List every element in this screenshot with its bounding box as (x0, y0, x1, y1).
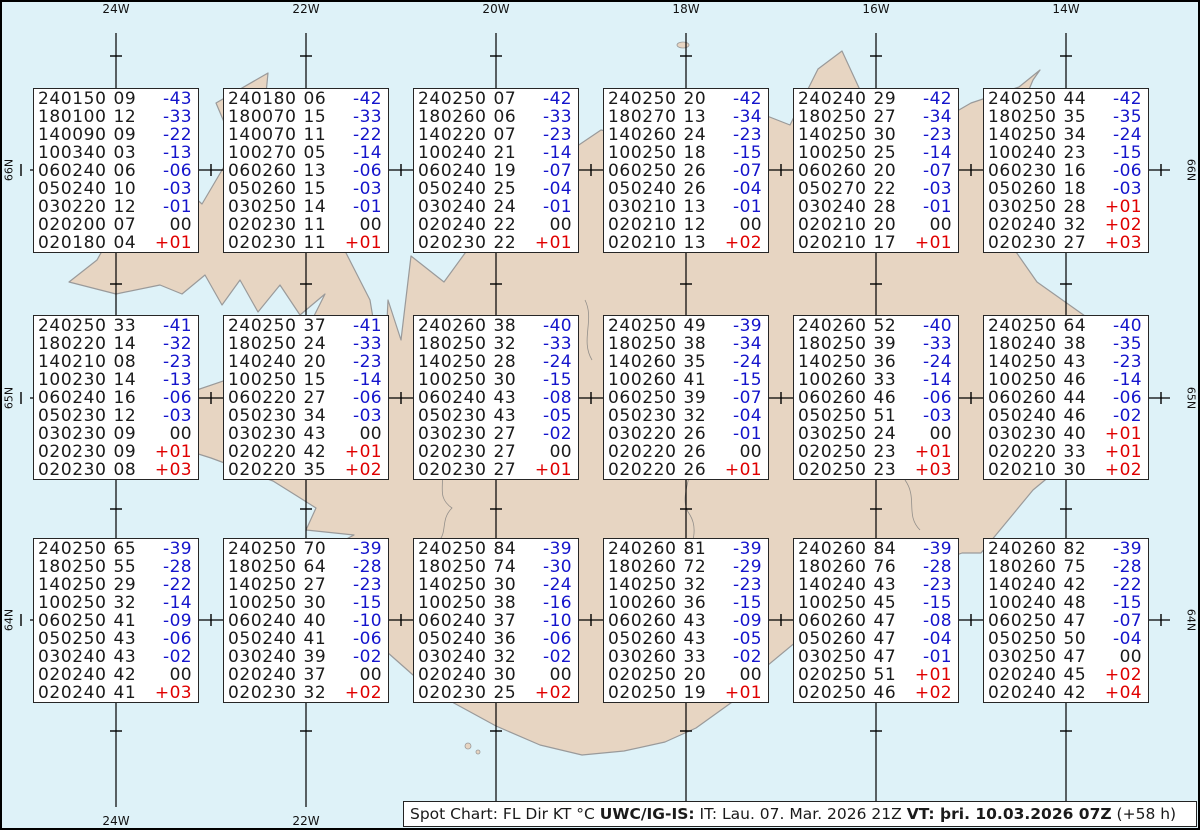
spot-line: 18024038-35 (984, 335, 1148, 353)
spot-line: 05026047-04 (794, 630, 958, 648)
fl-dir-value: 060230 (988, 162, 1057, 180)
spot-box-r3c3: 24025084-3918025074-3014025030-241002503… (413, 538, 579, 703)
fl-dir-value: 020230 (38, 443, 107, 461)
spot-line: 06026046-06 (794, 389, 958, 407)
temperature-value: -06 (163, 389, 192, 407)
fl-dir-value: 140260 (608, 126, 677, 144)
temperature-value: +01 (155, 234, 192, 252)
spot-line: 06022027-06 (224, 389, 388, 407)
fl-dir-value: 180250 (798, 108, 867, 126)
wind-speed-value: 43 (684, 630, 707, 648)
spot-line: 18025027-34 (794, 108, 958, 126)
spot-line: 05024010-03 (34, 180, 198, 198)
fl-dir-value: 180250 (798, 335, 867, 353)
spot-line: 18007015-33 (224, 108, 388, 126)
wind-speed-value: 33 (684, 648, 707, 666)
fl-dir-value: 240250 (38, 540, 107, 558)
fl-dir-value: 020210 (608, 216, 677, 234)
wind-speed-value: 21 (494, 144, 517, 162)
temperature-value: 00 (360, 216, 382, 234)
spot-box-r2c5: 24026052-4018025039-3314025036-241002603… (793, 315, 959, 480)
spot-line: 06026044-06 (984, 389, 1148, 407)
spot-line: 02022026+01 (604, 461, 768, 479)
fl-dir-value: 020230 (38, 461, 107, 479)
spot-line: 10025032-14 (34, 594, 198, 612)
temperature-value: -14 (543, 144, 572, 162)
wind-speed-value: 43 (114, 630, 137, 648)
wind-speed-value: 36 (494, 630, 517, 648)
wind-speed-value: 35 (684, 353, 707, 371)
wind-speed-value: 14 (114, 371, 137, 389)
fl-dir-value: 240250 (608, 317, 677, 335)
temperature-value: -01 (733, 198, 762, 216)
spot-box-r3c4: 24026081-3918026072-2914025032-231002603… (603, 538, 769, 703)
fl-dir-value: 020210 (798, 234, 867, 252)
wind-speed-value: 30 (304, 594, 327, 612)
spot-line: 14024020-23 (224, 353, 388, 371)
wind-speed-value: 13 (684, 234, 707, 252)
spot-box-r2c1: 24025033-4118022014-3214021008-231002301… (33, 315, 199, 480)
fl-dir-value: 100250 (988, 371, 1057, 389)
wind-speed-value: 30 (1064, 461, 1087, 479)
spot-line: 05025050-04 (984, 630, 1148, 648)
spot-line: 10025015-14 (224, 371, 388, 389)
temperature-value: -06 (353, 389, 382, 407)
spot-box-r3c1: 24025065-3918025055-2814025029-221002503… (33, 538, 199, 703)
temperature-value: -23 (923, 126, 952, 144)
temperature-value: -07 (923, 162, 952, 180)
temperature-value: 00 (930, 216, 952, 234)
wind-speed-value: 27 (494, 443, 517, 461)
temperature-value: -06 (353, 630, 382, 648)
wind-speed-value: 26 (684, 162, 707, 180)
wind-speed-value: 06 (494, 108, 517, 126)
spot-line: 06026013-06 (224, 162, 388, 180)
wind-speed-value: 07 (114, 216, 137, 234)
wind-speed-value: 11 (304, 126, 327, 144)
spot-line: 10026033-14 (794, 371, 958, 389)
temperature-value: 00 (740, 443, 762, 461)
wind-speed-value: 27 (1064, 234, 1087, 252)
spot-line: 24025049-39 (604, 317, 768, 335)
temperature-value: 00 (740, 666, 762, 684)
temperature-value: +02 (1105, 461, 1142, 479)
temperature-value: 00 (170, 425, 192, 443)
fl-dir-value: 100250 (228, 594, 297, 612)
temperature-value: -05 (733, 630, 762, 648)
wind-speed-value: 38 (494, 317, 517, 335)
spot-line: 18025024-33 (224, 335, 388, 353)
wind-speed-value: 28 (874, 198, 897, 216)
spot-line: 10025030-15 (224, 594, 388, 612)
wind-speed-value: 75 (1064, 558, 1087, 576)
fl-dir-value: 060240 (38, 389, 107, 407)
wind-speed-value: 65 (114, 540, 137, 558)
temperature-value: -14 (353, 371, 382, 389)
spot-line: 05023032-04 (604, 407, 768, 425)
wind-speed-value: 07 (494, 90, 517, 108)
spot-box-r1c5: 24024029-4218025027-3414025030-231002502… (793, 88, 959, 253)
spot-line: 02022042+01 (224, 443, 388, 461)
wind-speed-value: 47 (874, 648, 897, 666)
spot-box-r2c4: 24025049-3918025038-3414026035-241002604… (603, 315, 769, 480)
temperature-value: +03 (1105, 234, 1142, 252)
temperature-value: +01 (535, 461, 572, 479)
spot-line: 10025038-16 (414, 594, 578, 612)
wind-speed-value: 44 (1064, 90, 1087, 108)
spot-line: 03024024-01 (414, 198, 578, 216)
spot-line: 24018006-42 (224, 90, 388, 108)
spot-line: 06025039-07 (604, 389, 768, 407)
wind-speed-value: 30 (494, 371, 517, 389)
wind-speed-value: 32 (494, 335, 517, 353)
temperature-value: -10 (353, 612, 382, 630)
temperature-value: +01 (915, 443, 952, 461)
fl-dir-value: 140090 (38, 126, 107, 144)
wind-speed-value: 08 (114, 461, 137, 479)
temperature-value: -14 (1113, 371, 1142, 389)
spot-line: 24025007-42 (414, 90, 578, 108)
fl-dir-value: 140210 (38, 353, 107, 371)
spot-line: 0202402200 (414, 216, 578, 234)
fl-dir-value: 060240 (38, 162, 107, 180)
caption-segment: Spot Chart: FL Dir KT °C (410, 805, 600, 823)
spot-line: 03024032-02 (414, 648, 578, 666)
spot-line: 05025051-03 (794, 407, 958, 425)
spot-line: 02025046+02 (794, 684, 958, 702)
fl-dir-value: 100250 (798, 594, 867, 612)
wind-speed-value: 39 (304, 648, 327, 666)
fl-dir-value: 180250 (418, 335, 487, 353)
temperature-value: -40 (1113, 317, 1142, 335)
temperature-value: -15 (1113, 144, 1142, 162)
wind-speed-value: 03 (114, 144, 137, 162)
temperature-value: +02 (1105, 666, 1142, 684)
fl-dir-value: 030240 (418, 648, 487, 666)
temperature-value: -42 (1113, 90, 1142, 108)
wind-speed-value: 72 (684, 558, 707, 576)
fl-dir-value: 050260 (798, 630, 867, 648)
fl-dir-value: 020250 (798, 461, 867, 479)
fl-dir-value: 140250 (988, 126, 1057, 144)
lon-label-22W: 22W (292, 2, 319, 16)
temperature-value: -15 (353, 594, 382, 612)
temperature-value: -14 (353, 144, 382, 162)
spot-line: 0302304300 (224, 425, 388, 443)
spot-line: 14022007-23 (414, 126, 578, 144)
wind-speed-value: 11 (304, 234, 327, 252)
fl-dir-value: 020230 (418, 461, 487, 479)
wind-speed-value: 12 (114, 108, 137, 126)
spot-line: 24025033-41 (34, 317, 198, 335)
wind-speed-value: 12 (684, 216, 707, 234)
temperature-value: +01 (915, 666, 952, 684)
temperature-value: +02 (535, 684, 572, 702)
wind-speed-value: 76 (874, 558, 897, 576)
fl-dir-value: 060240 (228, 612, 297, 630)
temperature-value: 00 (550, 666, 572, 684)
temperature-value: 00 (1120, 648, 1142, 666)
spot-line: 02024042+04 (984, 684, 1148, 702)
wind-speed-value: 27 (304, 576, 327, 594)
temperature-value: -03 (163, 180, 192, 198)
fl-dir-value: 020200 (38, 216, 107, 234)
fl-dir-value: 100240 (418, 144, 487, 162)
spot-line: 02023009+01 (34, 443, 198, 461)
wind-speed-value: 46 (1064, 407, 1087, 425)
wind-speed-value: 43 (1064, 353, 1087, 371)
fl-dir-value: 140070 (228, 126, 297, 144)
fl-dir-value: 180250 (38, 558, 107, 576)
spot-line: 18026006-33 (414, 108, 578, 126)
temperature-value: -15 (733, 594, 762, 612)
fl-dir-value: 240260 (988, 540, 1057, 558)
temperature-value: -06 (543, 630, 572, 648)
spot-line: 10023014-13 (34, 371, 198, 389)
wind-speed-value: 38 (494, 594, 517, 612)
fl-dir-value: 180100 (38, 108, 107, 126)
wind-speed-value: 30 (874, 126, 897, 144)
wind-speed-value: 29 (114, 576, 137, 594)
spot-line: 24026082-39 (984, 540, 1148, 558)
fl-dir-value: 030220 (38, 198, 107, 216)
wind-speed-value: 27 (494, 425, 517, 443)
spot-line: 03023027-02 (414, 425, 578, 443)
wind-speed-value: 25 (874, 144, 897, 162)
spot-line: 02024041+03 (34, 684, 198, 702)
spot-line: 06025041-09 (34, 612, 198, 630)
spot-line: 0202502000 (604, 666, 768, 684)
spot-line: 14025027-23 (224, 576, 388, 594)
temperature-value: +01 (1105, 443, 1142, 461)
fl-dir-value: 020250 (608, 666, 677, 684)
spot-line: 14024043-23 (794, 576, 958, 594)
fl-dir-value: 050260 (228, 180, 297, 198)
temperature-value: -24 (543, 576, 572, 594)
fl-dir-value: 060240 (418, 612, 487, 630)
temperature-value: -39 (923, 540, 952, 558)
wind-speed-value: 46 (874, 684, 897, 702)
temperature-value: +01 (915, 234, 952, 252)
spot-box-r2c3: 24026038-4018025032-3314025028-241002503… (413, 315, 579, 480)
spot-line: 14025036-24 (794, 353, 958, 371)
fl-dir-value: 060250 (608, 162, 677, 180)
temperature-value: -32 (163, 335, 192, 353)
temperature-value: -07 (733, 389, 762, 407)
fl-dir-value: 180260 (608, 558, 677, 576)
spot-line: 02025019+01 (604, 684, 768, 702)
fl-dir-value: 180220 (38, 335, 107, 353)
fl-dir-value: 020240 (38, 684, 107, 702)
fl-dir-value: 030240 (228, 648, 297, 666)
temperature-value: -39 (1113, 540, 1142, 558)
spot-line: 14025028-24 (414, 353, 578, 371)
fl-dir-value: 180250 (418, 558, 487, 576)
spot-line: 02023032+02 (224, 684, 388, 702)
temperature-value: +01 (155, 443, 192, 461)
fl-dir-value: 030250 (988, 648, 1057, 666)
spot-line: 02024032+02 (984, 216, 1148, 234)
temperature-value: +04 (1105, 684, 1142, 702)
temperature-value: -04 (543, 180, 572, 198)
spot-line: 0302504700 (984, 648, 1148, 666)
spot-line: 18026072-29 (604, 558, 768, 576)
temperature-value: -42 (733, 90, 762, 108)
fl-dir-value: 020220 (228, 443, 297, 461)
fl-dir-value: 100230 (38, 371, 107, 389)
fl-dir-value: 060240 (418, 162, 487, 180)
wind-speed-value: 32 (1064, 216, 1087, 234)
temperature-value: -03 (353, 407, 382, 425)
fl-dir-value: 100250 (418, 371, 487, 389)
temperature-value: -33 (163, 108, 192, 126)
temperature-value: -08 (543, 389, 572, 407)
temperature-value: -35 (1113, 108, 1142, 126)
spot-box-r1c3: 24025007-4218026006-3314022007-231002402… (413, 88, 579, 253)
temperature-value: 00 (550, 443, 572, 461)
spot-line: 18025064-28 (224, 558, 388, 576)
temperature-value: +03 (915, 461, 952, 479)
spot-line: 18026075-28 (984, 558, 1148, 576)
temperature-value: -01 (733, 425, 762, 443)
temperature-value: -23 (543, 126, 572, 144)
temperature-value: -23 (353, 353, 382, 371)
wind-speed-value: 24 (494, 198, 517, 216)
temperature-value: -03 (1113, 180, 1142, 198)
temperature-value: -24 (923, 353, 952, 371)
fl-dir-value: 030230 (38, 425, 107, 443)
wind-speed-value: 34 (1064, 126, 1087, 144)
spot-line: 10024023-15 (984, 144, 1148, 162)
wind-speed-value: 23 (874, 461, 897, 479)
spot-line: 05024036-06 (414, 630, 578, 648)
wind-speed-value: 37 (304, 666, 327, 684)
spot-box-r3c6: 24026082-3918026075-2814024042-221002404… (983, 538, 1149, 703)
spot-line: 18026076-28 (794, 558, 958, 576)
spot-line: 14024042-22 (984, 576, 1148, 594)
temperature-value: -07 (1113, 612, 1142, 630)
wind-speed-value: 43 (304, 425, 327, 443)
spot-line: 0202202600 (604, 443, 768, 461)
temperature-value: -22 (353, 126, 382, 144)
wind-speed-value: 43 (874, 576, 897, 594)
spot-line: 03026033-02 (604, 648, 768, 666)
wind-speed-value: 08 (114, 353, 137, 371)
temperature-value: -09 (733, 612, 762, 630)
fl-dir-value: 060260 (798, 162, 867, 180)
spot-line: 06024006-06 (34, 162, 198, 180)
wind-speed-value: 15 (304, 180, 327, 198)
wind-speed-value: 34 (304, 407, 327, 425)
wind-speed-value: 13 (684, 108, 707, 126)
wind-speed-value: 09 (114, 425, 137, 443)
spot-line: 06024019-07 (414, 162, 578, 180)
temperature-value: +01 (535, 234, 572, 252)
temperature-value: -14 (923, 371, 952, 389)
temperature-value: -03 (163, 407, 192, 425)
fl-dir-value: 050270 (798, 180, 867, 198)
wind-speed-value: 43 (494, 389, 517, 407)
spot-line: 10034003-13 (34, 144, 198, 162)
lon-label-16W: 16W (862, 2, 889, 16)
fl-dir-value: 050230 (38, 407, 107, 425)
temperature-value: -29 (733, 558, 762, 576)
wind-speed-value: 26 (684, 461, 707, 479)
spot-line: 24026038-40 (414, 317, 578, 335)
wind-speed-value: 36 (874, 353, 897, 371)
temperature-value: -33 (353, 108, 382, 126)
temperature-value: 00 (740, 216, 762, 234)
temperature-value: -39 (353, 540, 382, 558)
wind-speed-value: 41 (114, 612, 137, 630)
spot-line: 02023008+03 (34, 461, 198, 479)
temperature-value: -41 (353, 317, 382, 335)
spot-line: 0202302700 (414, 443, 578, 461)
spot-line: 10025030-15 (414, 371, 578, 389)
fl-dir-value: 030250 (798, 425, 867, 443)
spot-line: 02021013+02 (604, 234, 768, 252)
fl-dir-value: 030230 (228, 425, 297, 443)
fl-dir-value: 140260 (608, 353, 677, 371)
spot-line: 24025064-40 (984, 317, 1148, 335)
temperature-value: -39 (163, 540, 192, 558)
temperature-value: -42 (543, 90, 572, 108)
lat-label-64N-right: 64N (1185, 609, 1198, 631)
lat-label-64N-left: 64N (3, 609, 16, 631)
wind-speed-value: 70 (304, 540, 327, 558)
fl-dir-value: 030240 (798, 198, 867, 216)
fl-dir-value: 020250 (798, 443, 867, 461)
wind-speed-value: 51 (874, 407, 897, 425)
temperature-value: -04 (733, 407, 762, 425)
fl-dir-value: 050230 (418, 407, 487, 425)
temperature-value: -02 (1113, 407, 1142, 425)
spot-line: 05026015-03 (224, 180, 388, 198)
temperature-value: -06 (923, 389, 952, 407)
wind-speed-value: 49 (684, 317, 707, 335)
temperature-value: -34 (733, 335, 762, 353)
spot-line: 10025045-15 (794, 594, 958, 612)
temperature-value: -28 (163, 558, 192, 576)
wind-speed-value: 16 (114, 389, 137, 407)
spot-line: 02018004+01 (34, 234, 198, 252)
wind-speed-value: 18 (1064, 180, 1087, 198)
wind-speed-value: 32 (684, 407, 707, 425)
fl-dir-value: 030250 (798, 648, 867, 666)
fl-dir-value: 240150 (38, 90, 107, 108)
spot-line: 14021008-23 (34, 353, 198, 371)
wind-speed-value: 06 (304, 90, 327, 108)
spot-line: 0202404200 (34, 666, 198, 684)
spot-line: 02022035+02 (224, 461, 388, 479)
fl-dir-value: 020240 (988, 684, 1057, 702)
spot-line: 06024040-10 (224, 612, 388, 630)
temperature-value: -33 (353, 335, 382, 353)
fl-dir-value: 020220 (608, 461, 677, 479)
temperature-value: -09 (163, 612, 192, 630)
wind-speed-value: 18 (684, 144, 707, 162)
fl-dir-value: 140240 (988, 576, 1057, 594)
fl-dir-value: 060260 (798, 612, 867, 630)
fl-dir-value: 050240 (988, 407, 1057, 425)
fl-dir-value: 030210 (608, 198, 677, 216)
wind-speed-value: 22 (874, 180, 897, 198)
temperature-value: +01 (725, 461, 762, 479)
wind-speed-value: 33 (874, 371, 897, 389)
fl-dir-value: 030230 (988, 425, 1057, 443)
wind-speed-value: 04 (114, 234, 137, 252)
spot-line: 18025074-30 (414, 558, 578, 576)
